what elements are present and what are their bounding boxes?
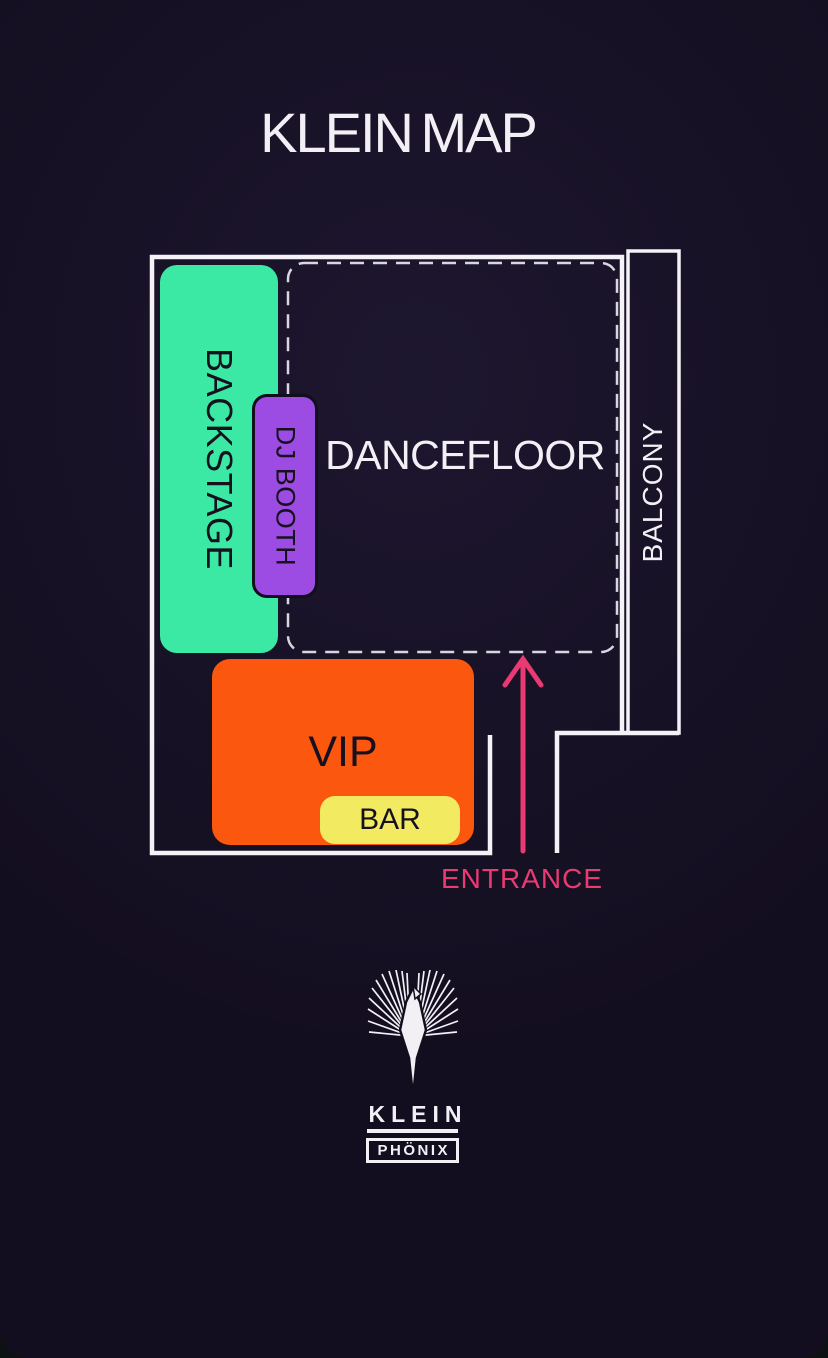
backstage-label: BACKSTAGE [198, 348, 240, 570]
brand-sub-badge: PHÖNIX [366, 1138, 459, 1163]
brand-sub-label: PHÖNIX [375, 1142, 450, 1159]
page-title: KLEIN MAP [0, 100, 796, 165]
dj-booth-label: DJ BOOTH [270, 426, 301, 567]
balcony-label: BALCONY [637, 422, 669, 563]
brand-underline [367, 1129, 458, 1133]
bar-area: BAR [320, 796, 460, 844]
entrance-arrow [505, 659, 541, 851]
phoenix-body [400, 986, 426, 1096]
brand-name: KLEIN [337, 1101, 493, 1128]
bar-label: BAR [320, 796, 460, 844]
dj-booth-area: DJ BOOTH [252, 394, 318, 598]
phoenix-icon [366, 970, 460, 1098]
entrance-label: ENTRANCE [441, 863, 603, 895]
venue-map-page: KLEIN MAP BACKSTAGE DJ BOOTH VIP BAR DAN… [0, 0, 828, 1358]
dancefloor-label: DANCEFLOOR [300, 432, 630, 479]
